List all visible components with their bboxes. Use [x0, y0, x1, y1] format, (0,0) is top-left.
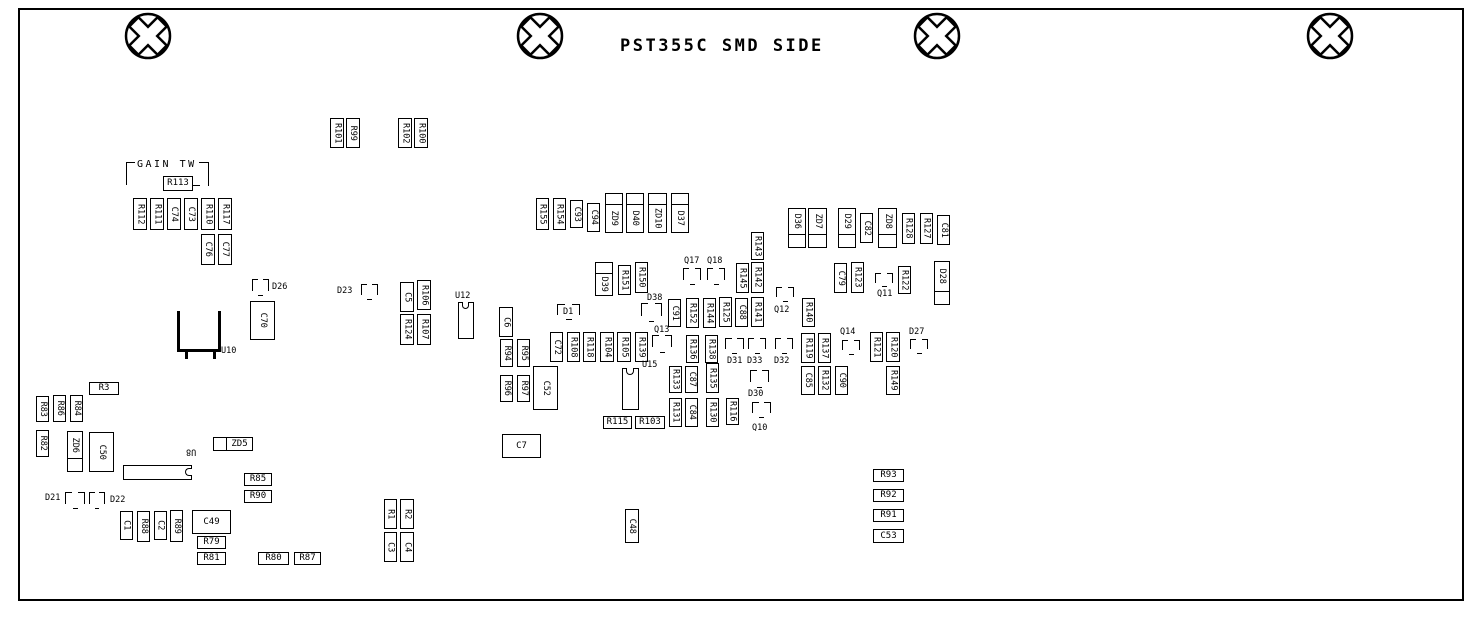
component-r123: R123 — [851, 262, 864, 293]
component-c77: C77 — [218, 234, 232, 265]
component-r83: R83 — [36, 396, 49, 422]
component-u12-outline — [458, 302, 474, 339]
component-u8-label: U8 — [187, 446, 196, 456]
component-d38-label: D38 — [647, 294, 662, 303]
component-c48: C48 — [625, 509, 639, 543]
component-r93: R93 — [873, 469, 904, 482]
component-c7: C7 — [502, 434, 541, 458]
component-d30-outline — [750, 370, 769, 388]
component-d33-outline — [748, 338, 766, 354]
component-c73: C73 — [184, 198, 198, 230]
component-r79: R79 — [197, 536, 226, 549]
component-r111: R111 — [150, 198, 164, 230]
component-r120: R120 — [886, 332, 900, 362]
component-r81: R81 — [197, 552, 226, 565]
component-r107: R107 — [417, 314, 431, 345]
component-d39: D39 — [595, 262, 613, 296]
component-r94: R94 — [500, 339, 513, 367]
component-d33-label: D33 — [747, 357, 762, 366]
component-r110: R110 — [201, 198, 215, 230]
component-c2: C2 — [154, 511, 167, 540]
component-u12-label: U12 — [455, 292, 470, 301]
component-u10-label: U10 — [221, 347, 236, 356]
component-r130: R130 — [706, 398, 719, 427]
component-r127: R127 — [920, 213, 933, 244]
component-u8-outline — [123, 465, 192, 480]
component-q14-label: Q14 — [840, 328, 855, 337]
component-r85: R85 — [244, 473, 272, 486]
mounting-hole-icon — [123, 11, 173, 61]
component-d21-label: D21 — [45, 494, 60, 503]
component-c50: C50 — [89, 432, 114, 472]
component-r118: R118 — [583, 332, 596, 362]
component-q11-label: Q11 — [877, 290, 892, 299]
component-r137: R137 — [818, 333, 831, 363]
component-r142: R142 — [751, 262, 764, 293]
component-r152: R152 — [686, 298, 699, 328]
board-title: PST355C SMD SIDE — [620, 36, 824, 56]
component-q10-outline — [752, 402, 771, 418]
component-r132: R132 — [818, 366, 831, 395]
component-c93: C93 — [570, 200, 583, 228]
component-q17-outline — [683, 268, 701, 285]
component-r144: R144 — [703, 298, 716, 328]
component-r139: R139 — [635, 332, 648, 362]
component-d21-outline — [65, 492, 85, 509]
component-zd8: ZD8 — [878, 208, 897, 248]
component-r116: R116 — [726, 398, 739, 425]
component-r155: R155 — [536, 198, 549, 230]
component-r106: R106 — [417, 280, 431, 310]
component-c49: C49 — [192, 510, 231, 534]
component-r95: R95 — [517, 339, 530, 367]
component-u10-outline — [177, 311, 221, 352]
component-zd5: ZD5 — [213, 437, 253, 451]
component-q18-outline — [707, 268, 725, 285]
component-c90: C90 — [835, 366, 848, 395]
component-c82: C82 — [860, 213, 873, 243]
component-d27-label: D27 — [909, 328, 924, 337]
component-zd7: ZD7 — [808, 208, 827, 248]
component-q14-outline — [842, 340, 860, 355]
component-r100: R100 — [414, 118, 428, 148]
component-r103: R103 — [635, 416, 665, 429]
component-c5: C5 — [400, 282, 414, 312]
component-r96: R96 — [500, 375, 513, 402]
component-q17-label: Q17 — [684, 257, 699, 266]
component-zd9: ZD9 — [605, 193, 623, 233]
component-r135: R135 — [706, 363, 719, 393]
component-q12-outline — [776, 287, 794, 302]
component-r131: R131 — [669, 398, 682, 427]
component-q13-label: Q13 — [654, 326, 669, 335]
component-u15-label: U15 — [642, 361, 657, 370]
component-r138: R138 — [705, 335, 718, 363]
mounting-hole-icon — [1305, 11, 1355, 61]
component-r121: R121 — [870, 332, 883, 362]
component-c6: C6 — [499, 307, 513, 337]
component-c84: C84 — [685, 398, 698, 427]
component-d23-label: D23 — [337, 287, 352, 296]
component-d40: D40 — [626, 193, 644, 233]
component-c81: C81 — [937, 215, 950, 245]
component-c91: C91 — [668, 299, 681, 327]
component-c79: C79 — [834, 263, 847, 293]
component-r112: R112 — [133, 198, 147, 230]
component-c70: C70 — [250, 301, 275, 340]
component-r2: R2 — [400, 499, 414, 529]
component-d37: D37 — [671, 193, 689, 233]
component-d28: D28 — [934, 261, 950, 305]
component-r99: R99 — [346, 118, 360, 148]
component-c94: C94 — [587, 203, 600, 232]
component-d26-label: D26 — [272, 283, 287, 292]
component-r125: R125 — [719, 297, 732, 327]
component-d31-label: D31 — [727, 357, 742, 366]
component-zd6: ZD6 — [67, 431, 83, 472]
component-r82: R82 — [36, 430, 49, 457]
component-d27-outline — [910, 339, 928, 354]
component-d22-label: D22 — [110, 496, 125, 505]
component-d32-label: D32 — [774, 357, 789, 366]
component-d22-outline — [89, 492, 105, 509]
component-c53: C53 — [873, 529, 904, 543]
component-r89: R89 — [170, 510, 183, 542]
component-r115: R115 — [603, 416, 632, 429]
component-r154: R154 — [553, 198, 566, 230]
mounting-hole-icon — [912, 11, 962, 61]
component-r90: R90 — [244, 490, 272, 503]
component-u15-outline — [622, 368, 639, 410]
component-r113: R113 — [163, 176, 193, 191]
component-r1: R1 — [384, 499, 397, 529]
component-c87: C87 — [685, 366, 698, 393]
component-c88: C88 — [735, 298, 748, 327]
component-c3: C3 — [384, 532, 397, 562]
component-d1-label: D1 — [563, 308, 573, 317]
component-r104: R104 — [600, 332, 614, 362]
component-r149: R149 — [886, 366, 900, 395]
component-q10-label: Q10 — [752, 424, 767, 433]
component-q12-label: Q12 — [774, 306, 789, 315]
component-c72: C72 — [550, 332, 563, 362]
component-d23-outline — [361, 284, 378, 300]
component-q18-label: Q18 — [707, 257, 722, 266]
component-r145: R145 — [736, 263, 749, 293]
component-d38-outline — [641, 303, 662, 322]
component-c76: C76 — [201, 234, 215, 265]
component-r140: R140 — [802, 298, 815, 327]
component-r124: R124 — [400, 314, 414, 345]
component-zd10: ZD10 — [648, 193, 667, 233]
component-r87: R87 — [294, 552, 321, 565]
component-r117: R117 — [218, 198, 232, 230]
component-q11-outline — [875, 273, 893, 287]
component-r88: R88 — [137, 511, 150, 542]
component-r105: R105 — [617, 332, 631, 362]
component-c1: C1 — [120, 511, 133, 540]
mounting-hole-icon — [515, 11, 565, 61]
component-d29: D29 — [838, 208, 856, 248]
component-r92: R92 — [873, 489, 904, 502]
component-d36: D36 — [788, 208, 806, 248]
component-r108: R108 — [567, 332, 580, 362]
component-r143: R143 — [751, 232, 764, 260]
component-r150: R150 — [635, 262, 648, 293]
component-r141: R141 — [751, 297, 764, 327]
component-r128: R128 — [902, 213, 915, 244]
component-gain-tw-bracket-arm-outline — [192, 185, 200, 186]
component-r84: R84 — [70, 395, 83, 422]
component-r80: R80 — [258, 552, 289, 565]
component-r86: R86 — [53, 395, 66, 422]
component-c85: C85 — [801, 366, 815, 395]
pcb-assembly-drawing: PST355C SMD SIDE GAIN TWR113R101R99R102R… — [0, 0, 1482, 619]
component-c74: C74 — [167, 198, 181, 230]
component-c4: C4 — [400, 532, 414, 562]
component-r133: R133 — [669, 366, 682, 393]
component-d31-outline — [725, 338, 744, 354]
component-r119: R119 — [801, 333, 815, 363]
component-r91: R91 — [873, 509, 904, 522]
component-gain-tw-bracket-right-outline — [199, 162, 209, 186]
component-d32-outline — [775, 338, 793, 354]
component-gain-tw-bracket-left-outline — [126, 162, 135, 185]
component-r3: R3 — [89, 382, 119, 395]
component-r151: R151 — [618, 265, 631, 295]
component-r102: R102 — [398, 118, 412, 148]
component-r136: R136 — [686, 335, 699, 363]
component-q13-outline — [652, 335, 672, 353]
component-d30-label: D30 — [748, 390, 763, 399]
component-r122: R122 — [898, 266, 911, 294]
component-r97: R97 — [517, 375, 530, 402]
component-gain-tw-label: GAIN TW — [137, 160, 197, 170]
component-r101: R101 — [330, 118, 344, 148]
component-c52: C52 — [533, 366, 558, 410]
component-d26-outline — [252, 279, 269, 296]
